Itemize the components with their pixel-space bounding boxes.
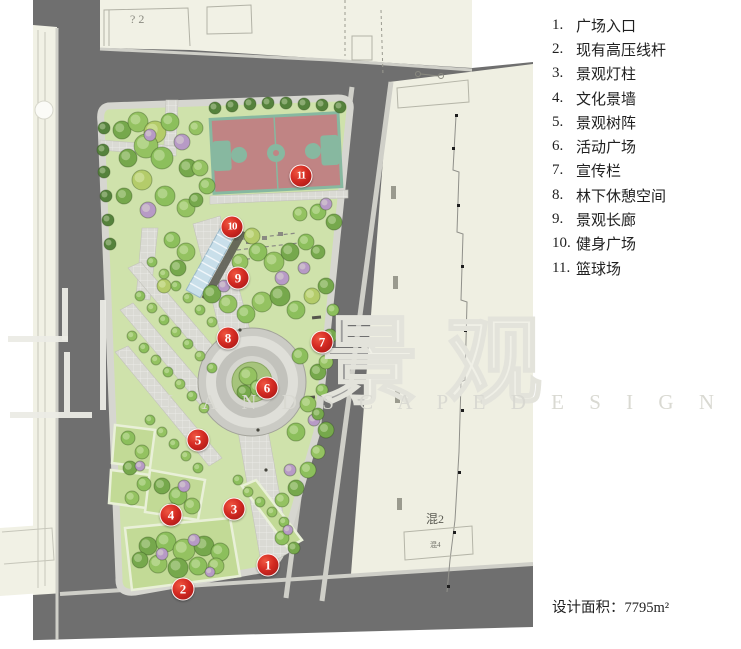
tree-canopy: [125, 491, 139, 505]
legend-item-label: 文化景墙: [576, 88, 737, 109]
tree-canopy: [195, 305, 205, 315]
tree-canopy: [334, 101, 346, 113]
tree-canopy: [252, 292, 272, 312]
tree-canopy: [175, 379, 185, 389]
tree-canopy: [156, 548, 168, 560]
plan-marker-5: 5: [187, 429, 210, 452]
basketball-court: [210, 113, 342, 194]
tree-canopy: [192, 160, 208, 176]
tree-canopy: [326, 214, 342, 230]
legend-item: 10.健身广场: [552, 232, 737, 256]
tree-canopy: [132, 552, 148, 568]
tree-canopy: [151, 355, 161, 365]
tree-canopy: [311, 245, 325, 259]
legend-item: 3.景观灯柱: [552, 62, 737, 86]
legend-item-number: 7.: [552, 162, 576, 179]
tree-canopy: [98, 122, 110, 134]
tree-canopy: [135, 445, 149, 459]
tree-canopy: [298, 98, 310, 110]
legend-item-number: 2.: [552, 41, 576, 58]
tree-canopy: [189, 121, 203, 135]
tree-canopy: [320, 198, 332, 210]
tree-canopy: [205, 567, 215, 577]
tree-canopy: [97, 144, 109, 156]
tree-canopy: [127, 331, 137, 341]
area-note: 设计面积：7795m²: [552, 596, 669, 617]
legend-item-label: 宣传栏: [576, 160, 737, 181]
tree-canopy: [187, 391, 197, 401]
tree-canopy: [288, 480, 304, 496]
tree-canopy: [287, 423, 305, 441]
plan-marker-11: 11: [290, 165, 313, 188]
tree-canopy: [147, 303, 157, 313]
tree-canopy: [164, 232, 180, 248]
plan-marker-3: 3: [223, 498, 246, 521]
tree-canopy: [104, 238, 116, 250]
tree-canopy: [193, 463, 203, 473]
tree-canopy: [119, 149, 137, 167]
legend-item-number: 11.: [552, 260, 576, 277]
tree-canopy: [267, 507, 277, 517]
tree-canopy: [207, 317, 217, 327]
tree-canopy: [183, 293, 193, 303]
plan-marker-1: 1: [257, 554, 280, 577]
tree-canopy: [287, 301, 305, 319]
tree-canopy: [311, 445, 325, 459]
tree-canopy: [199, 403, 209, 413]
tree-canopy: [171, 327, 181, 337]
tree-canopy: [135, 291, 145, 301]
tree-canopy: [155, 186, 175, 206]
tree-canopy: [298, 262, 310, 274]
corner-circle-symbol: [35, 101, 53, 119]
tree-canopy: [244, 228, 260, 244]
tree-canopy: [275, 271, 289, 285]
tree-canopy: [183, 339, 193, 349]
plan-marker-6: 6: [256, 377, 279, 400]
legend-item: 11.篮球场: [552, 256, 737, 280]
tree-canopy: [283, 525, 293, 535]
legend-item-label: 景观长廊: [576, 209, 737, 230]
tree-canopy: [100, 190, 112, 202]
tree-canopy: [98, 166, 110, 178]
tree-canopy: [255, 497, 265, 507]
tree-canopy: [300, 462, 316, 478]
tree-canopy: [319, 355, 333, 369]
tree-canopy: [121, 431, 135, 445]
tree-canopy: [174, 134, 190, 150]
tree-canopy: [102, 214, 114, 226]
area-note-value: 7795m²: [625, 600, 670, 616]
plan-marker-9: 9: [227, 267, 250, 290]
plan-marker-8: 8: [217, 327, 240, 350]
tree-canopy: [195, 351, 205, 361]
tree-canopy: [135, 461, 145, 471]
tree-canopy: [316, 99, 328, 111]
legend-item: 6.活动广场: [552, 134, 737, 158]
tree-canopy: [318, 278, 334, 294]
legend-item-number: 1.: [552, 17, 576, 34]
tree-canopy: [209, 102, 221, 114]
legend-item-label: 活动广场: [576, 136, 737, 157]
legend-item-label: 景观树阵: [576, 112, 737, 133]
legend-item-label: 景观灯柱: [576, 63, 737, 84]
tree-canopy: [178, 480, 190, 492]
tree-canopy: [171, 281, 181, 291]
tree-canopy: [140, 202, 156, 218]
legend-item-label: 广场入口: [576, 15, 737, 36]
tree-canopy: [184, 498, 200, 514]
legend-item-number: 10.: [552, 235, 576, 252]
tree-canopy: [169, 439, 179, 449]
building-label-right-small: 混4: [430, 540, 441, 549]
tree-canopy: [161, 113, 179, 131]
site-plan-page: ? 2 混2 混4: [0, 0, 741, 649]
tree-canopy: [189, 557, 207, 575]
tree-canopy: [181, 451, 191, 461]
legend-item: 9.景观长廊: [552, 207, 737, 231]
legend-item: 7.宣传栏: [552, 159, 737, 183]
tree-canopy: [270, 286, 290, 306]
tree-canopy: [188, 534, 200, 546]
tree-canopy: [237, 305, 255, 323]
tree-canopy: [168, 558, 188, 578]
legend-item: 4.文化景墙: [552, 86, 737, 110]
tree-canopy: [189, 193, 203, 207]
tree-canopy: [244, 98, 256, 110]
legend-item-label: 篮球场: [576, 258, 737, 279]
tree-canopy: [298, 234, 314, 250]
tree-canopy: [304, 288, 320, 304]
legend: 1.广场入口2.现有高压线杆3.景观灯柱4.文化景墙5.景观树阵6.活动广场7.…: [552, 13, 737, 280]
legend-item-number: 9.: [552, 211, 576, 228]
tree-canopy: [312, 408, 324, 420]
tree-canopy: [199, 178, 215, 194]
legend-item: 2.现有高压线杆: [552, 37, 737, 61]
tree-canopy: [154, 478, 170, 494]
tree-canopy: [132, 170, 152, 190]
tree-canopy: [316, 384, 328, 396]
tree-canopy: [163, 367, 173, 377]
tree-canopy: [116, 188, 132, 204]
legend-item: 5.景观树阵: [552, 110, 737, 134]
tree-canopy: [237, 385, 251, 399]
legend-item: 1.广场入口: [552, 13, 737, 37]
legend-item-number: 5.: [552, 114, 576, 131]
tree-canopy: [159, 315, 169, 325]
legend-item-number: 3.: [552, 65, 576, 82]
tree-canopy: [151, 147, 173, 169]
tree-canopy: [275, 493, 289, 507]
tree-canopy: [219, 295, 237, 313]
tree-canopy: [207, 363, 217, 373]
tree-canopy: [145, 415, 155, 425]
tree-canopy: [318, 422, 334, 438]
tree-canopy: [262, 97, 274, 109]
legend-item: 8.林下休憩空间: [552, 183, 737, 207]
tree-canopy: [170, 260, 186, 276]
legend-item-label: 林下休憩空间: [576, 185, 737, 206]
tree-canopy: [157, 427, 167, 437]
tree-canopy: [233, 475, 243, 485]
plan-marker-2: 2: [172, 578, 195, 601]
tree-canopy: [327, 304, 339, 316]
plan-marker-7: 7: [311, 331, 334, 354]
legend-item-number: 4.: [552, 90, 576, 107]
tree-canopy: [177, 243, 195, 261]
plan-marker-10: 10: [221, 216, 244, 239]
tree-canopy: [243, 487, 253, 497]
area-note-label: 设计面积：: [552, 600, 625, 616]
tree-canopy: [137, 477, 151, 491]
tree-canopy: [226, 100, 238, 112]
plan-marker-4: 4: [160, 504, 183, 527]
tree-canopy: [284, 464, 296, 476]
tree-canopy: [280, 97, 292, 109]
building-label-right: 混2: [426, 512, 444, 526]
tree-canopy: [293, 207, 307, 221]
legend-item-number: 8.: [552, 187, 576, 204]
legend-item-number: 6.: [552, 138, 576, 155]
tree-canopy: [157, 279, 171, 293]
legend-item-label: 健身广场: [576, 233, 737, 254]
tree-canopy: [292, 348, 308, 364]
tree-canopy: [147, 257, 157, 267]
tree-canopy: [288, 542, 300, 554]
tree-canopy: [281, 243, 299, 261]
tree-canopy: [159, 269, 169, 279]
tree-canopy: [139, 343, 149, 353]
tree-canopy: [144, 129, 156, 141]
building-label-top: ? 2: [130, 12, 144, 26]
legend-item-label: 现有高压线杆: [576, 39, 737, 60]
